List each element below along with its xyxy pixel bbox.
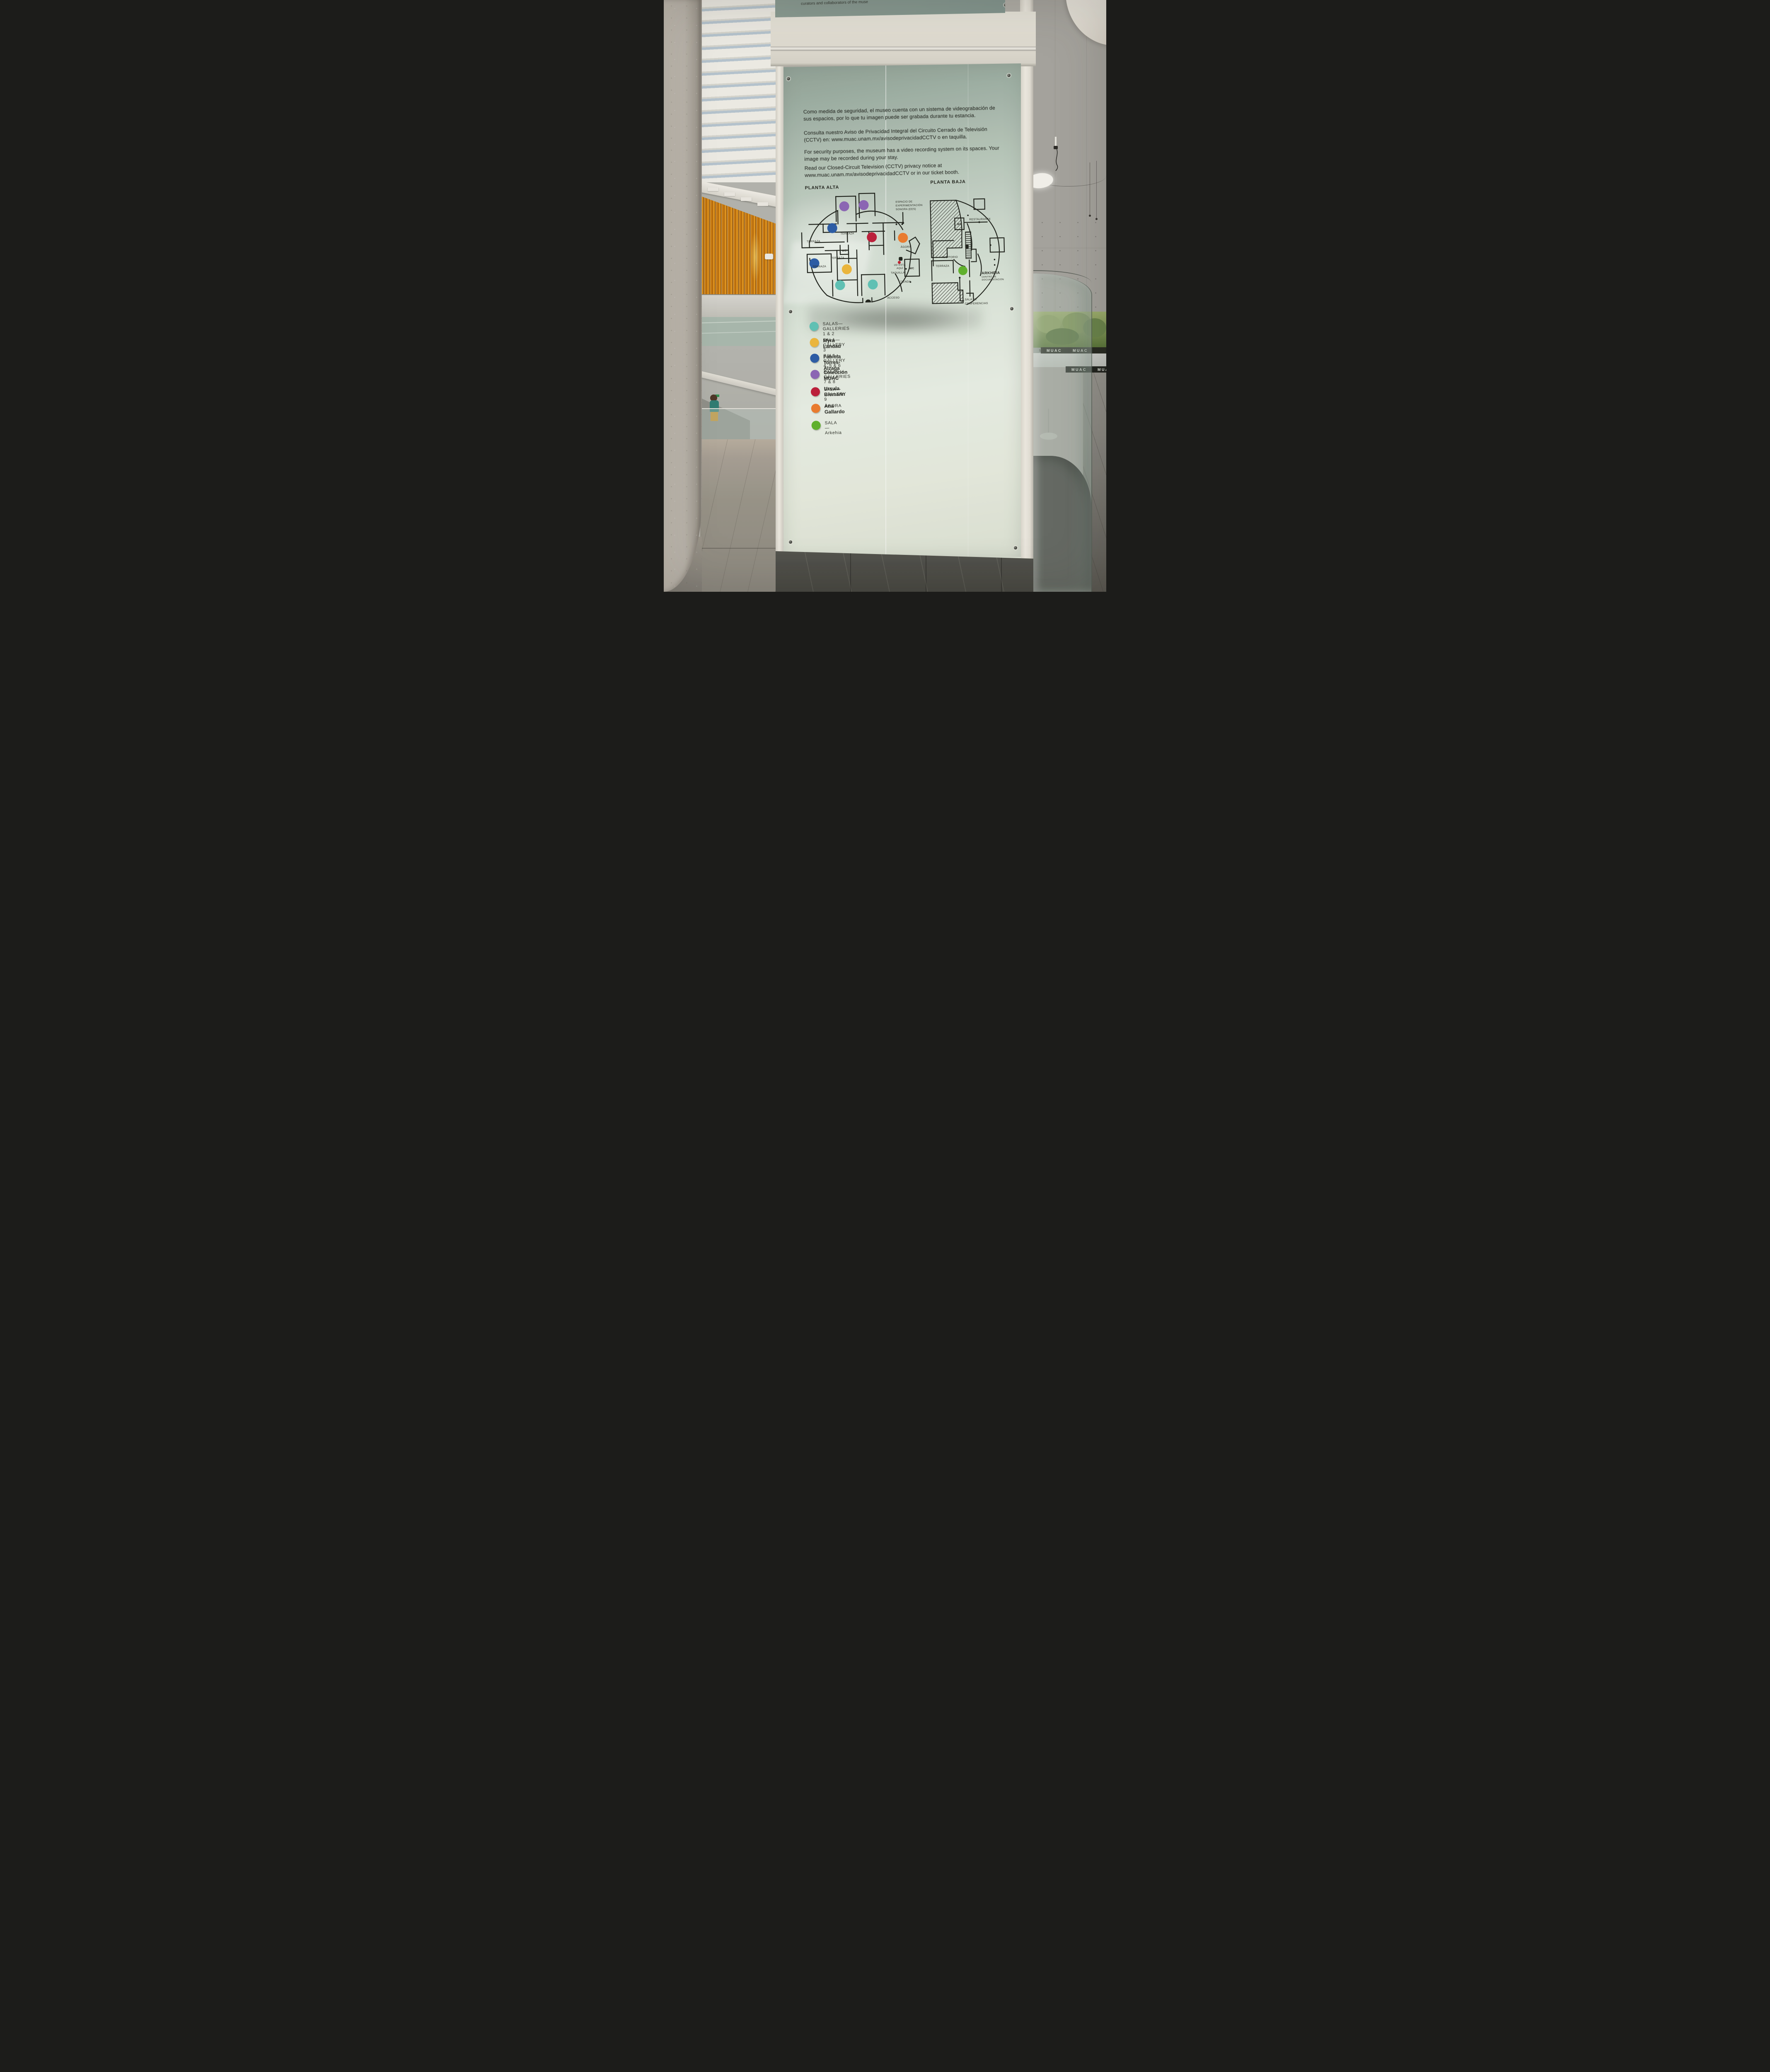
svg-text:DOCUMENTACIÓN: DOCUMENTACIÓN xyxy=(982,278,1004,281)
svg-text:AQUÍ: AQUÍ xyxy=(897,267,903,270)
arkheia-dot xyxy=(958,266,967,275)
pillar-white-band xyxy=(771,12,1036,66)
agora-dot xyxy=(898,233,908,243)
ees-label: ESPACIO DE xyxy=(895,200,912,203)
taquilla-label: TAQUILLA xyxy=(891,271,905,275)
terraza-label: TERRAZA xyxy=(936,265,949,268)
conferencias-label: SALA DE xyxy=(965,298,977,301)
hatched-area xyxy=(930,200,962,258)
glass-balustrade-lower xyxy=(700,408,776,441)
privacy-text-en-1: For security purposes, the museum has a … xyxy=(804,145,1001,162)
planta-alta-title: PLANTA ALTA xyxy=(805,185,839,191)
glass-balustrade-upper xyxy=(700,317,776,346)
panel-screw xyxy=(789,310,792,313)
hatched-area xyxy=(932,283,963,304)
restaurante-label: RESTAURANTE xyxy=(969,218,991,221)
concrete-column xyxy=(664,0,702,592)
privacy-wayfinding-panel: Como medida de seguridad, el museo cuent… xyxy=(783,63,1021,561)
gallery-4-5-6-dot xyxy=(827,223,837,233)
leader-dot xyxy=(959,277,960,278)
pillar-right-trim xyxy=(1020,0,1033,592)
privacy-text-es-1: Como medida de seguridad, el museo cuent… xyxy=(803,104,1000,122)
legend-dot-green xyxy=(811,421,820,430)
terraza-label: TERRAZA xyxy=(841,232,854,235)
aluminum-channel xyxy=(771,46,1036,51)
acceso-door xyxy=(865,300,871,303)
terraza-label: TERRAZA xyxy=(807,240,820,243)
museum-photo-scene: MUAC MUAC MUAC MUAC MUAC curators and co… xyxy=(664,0,1106,592)
panel-screw xyxy=(787,77,790,80)
pendant-cable xyxy=(1090,162,1090,215)
legend-dot-blue xyxy=(810,353,819,363)
svg-text:SONORA (EES): SONORA (EES) xyxy=(896,208,916,211)
planta-alta-map: TERRAZA TERRAZA TERRAZA TERRAZA ESPACIO … xyxy=(798,191,924,309)
legend-row-agora: ÁGORA xyxy=(811,403,842,413)
svg-text:CENTRO DE: CENTRO DE xyxy=(982,276,996,278)
you-are-here-dot xyxy=(898,261,901,264)
left-interior-bay xyxy=(700,0,776,592)
panel-content: Como medida de seguridad, el museo cuent… xyxy=(778,61,1026,563)
terraza-label: TERRAZA xyxy=(812,265,826,269)
concrete-ledge xyxy=(700,294,776,317)
louver-end-tab xyxy=(724,192,735,196)
pendant-light xyxy=(1089,215,1091,217)
camera-mount xyxy=(1055,137,1057,147)
louver-end-tab xyxy=(708,187,718,191)
white-louver-facade xyxy=(700,0,776,188)
panel-screw xyxy=(1014,546,1017,549)
panel-screw xyxy=(1004,3,1005,7)
gallery-1-2-dot xyxy=(868,279,878,289)
you-are-here-label: UD ESTÁ xyxy=(894,264,905,267)
privacy-text-es-2: Consulta nuestro Aviso de Privacidad Int… xyxy=(804,126,1001,143)
gallery-1-2-dot xyxy=(835,280,845,290)
curved-white-ceiling xyxy=(1066,0,1106,46)
legend-dot-orange xyxy=(811,404,820,413)
tienda-label: TIENDA xyxy=(900,281,911,284)
pillar-left-trim xyxy=(776,0,783,592)
amber-glow xyxy=(750,232,761,282)
elevator-icon xyxy=(965,244,969,249)
pendant-cable xyxy=(1096,161,1097,219)
louver-end-tab xyxy=(741,197,752,201)
panel-screw xyxy=(789,540,792,544)
stone-floor-left xyxy=(700,439,776,592)
panel-screw xyxy=(1007,74,1011,77)
leader-dot xyxy=(978,221,980,223)
acceso-label: ACCESO xyxy=(887,296,900,300)
gallery-3-dot xyxy=(842,264,852,274)
legend-dot-yellow xyxy=(810,338,819,347)
building-arc xyxy=(956,199,1000,298)
arkheia-label: ARKHEIA xyxy=(982,271,1000,275)
upper-panel-text-fragment: curators and collaborators of the muse xyxy=(801,0,1000,6)
gallery-7-8-dot xyxy=(839,201,849,211)
auditorio-label: AUDITORIO xyxy=(942,256,958,259)
legend-row-arkehia: SALA—Arkehia xyxy=(811,420,841,436)
wc-icon: WC xyxy=(842,249,847,252)
panel-screw xyxy=(1010,307,1013,310)
svg-text:EXPERIMENTACIÓN: EXPERIMENTACIÓN xyxy=(896,203,923,207)
planta-baja-map: RESTAURANTE WC AUDITORIO TERRAZA ARKHEIA… xyxy=(929,198,1010,312)
legend-dot-purple xyxy=(810,370,820,379)
legend-dot-teal xyxy=(809,322,818,331)
curved-glass-wall xyxy=(1033,274,1092,592)
privacy-text-en-2: Read our Closed-Circuit Television (CCTV… xyxy=(805,161,1001,179)
gallery-9-dot xyxy=(867,232,877,242)
muac-wordmark: MUAC xyxy=(1098,368,1106,372)
wc-icon: WC xyxy=(957,223,962,226)
svg-text:CONFERENCIAS: CONFERENCIAS xyxy=(965,302,988,305)
planta-baja-title: PLANTA BAJA xyxy=(930,179,965,185)
door-handle xyxy=(765,254,773,259)
camera-cable xyxy=(1050,148,1066,172)
floor-joint-line xyxy=(700,548,776,549)
info-marker xyxy=(899,257,902,261)
gallery-7-8-dot xyxy=(858,200,868,210)
legend-dot-red xyxy=(811,387,820,396)
agora-label: ÁGORA xyxy=(901,245,912,249)
pendant-light xyxy=(1095,218,1098,220)
wc-icon: WC xyxy=(909,267,914,270)
louver-end-tab xyxy=(757,202,768,206)
terraza-label: TERRAZA xyxy=(831,257,844,260)
right-interior-bay: MUAC MUAC MUAC MUAC MUAC xyxy=(1033,0,1106,592)
